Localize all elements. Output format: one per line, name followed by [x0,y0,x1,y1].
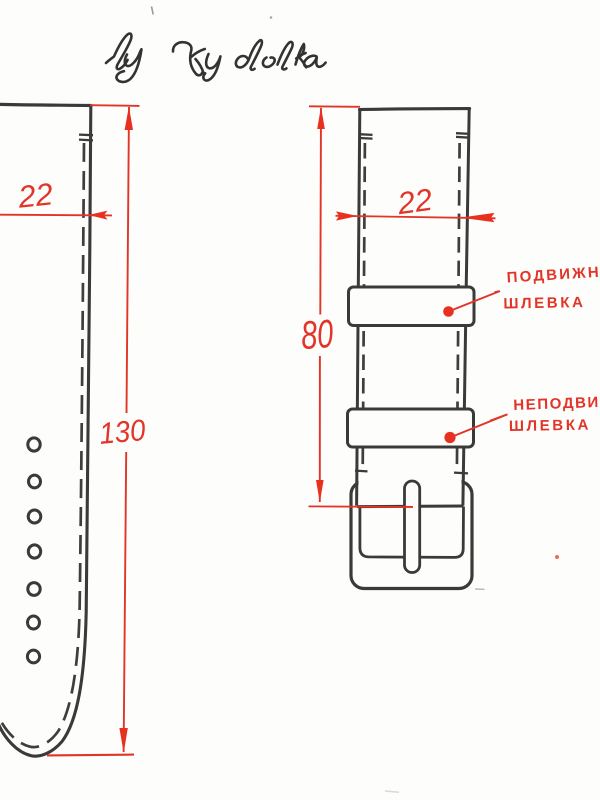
svg-text:22: 22 [394,182,434,222]
svg-text:ШЛЕВКА: ШЛЕВКА [509,417,591,435]
svg-text:130: 130 [98,414,147,451]
svg-text:22: 22 [16,176,55,215]
svg-text:ШЛЕВКА: ШЛЕВКА [503,294,585,312]
svg-text:80: 80 [300,313,336,359]
